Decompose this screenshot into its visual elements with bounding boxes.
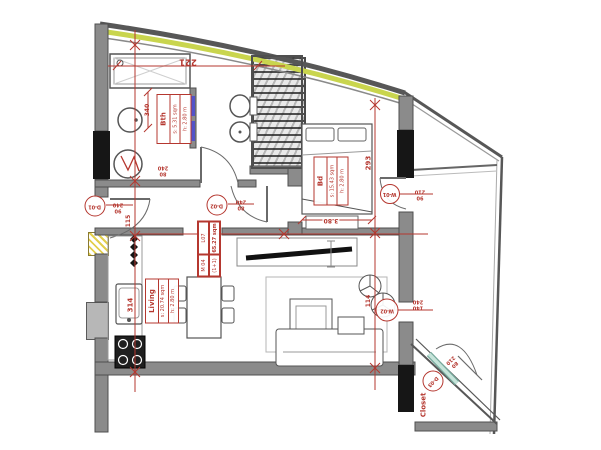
- coffee-table: [338, 317, 364, 334]
- sofa: [276, 329, 383, 366]
- dim-w02: 140240: [413, 299, 423, 310]
- unit-label: M 04 L07 (1+1) 65.27 sqm: [197, 221, 221, 278]
- dim-bedroom: 293: [365, 156, 372, 171]
- dim-d01: 90240: [113, 202, 123, 213]
- window-tag-w01: W-01: [380, 184, 400, 204]
- dim-overall-top: 221: [179, 57, 197, 66]
- dim-balcony: 114: [366, 295, 372, 308]
- door-tag-d03: D-03: [423, 371, 444, 392]
- door-tag-d02: D-02: [207, 195, 228, 216]
- water-heater: [114, 150, 142, 178]
- dim-bath: 340: [145, 104, 151, 117]
- door-tag-d01: D-01: [85, 196, 106, 217]
- room-label-bath: Bth s: 5.31 sqm h: 2.80 m: [157, 94, 192, 144]
- bathroom-sink: [118, 108, 142, 132]
- bidet: [230, 122, 257, 142]
- stove: [115, 336, 145, 368]
- plan-drawing: [0, 0, 601, 450]
- closet-label: Closet: [420, 393, 427, 418]
- living-furniture: [266, 275, 395, 366]
- dim-hall: 115: [126, 215, 132, 228]
- toilet: [230, 95, 257, 117]
- floor-plan-canvas: 221 340 115 314 293 114 3.80 Closet 8024…: [0, 0, 601, 450]
- dim-bed-width: 3.80: [323, 217, 340, 223]
- window-tag-w02: W-02: [376, 299, 399, 322]
- dim-d02: 80240: [236, 199, 246, 210]
- room-label-bedroom: Bd s: 15.43 sqm h: 2.80 m: [314, 157, 349, 206]
- tv-console: [237, 238, 357, 267]
- dim-bath-door: 80240: [158, 165, 168, 176]
- room-label-living: Living s: 20.74 sqm h: 2.80 m: [145, 279, 179, 324]
- dim-kitchen: 314: [127, 298, 134, 313]
- dim-w01: 90210: [415, 189, 425, 200]
- dining-table: [174, 277, 234, 338]
